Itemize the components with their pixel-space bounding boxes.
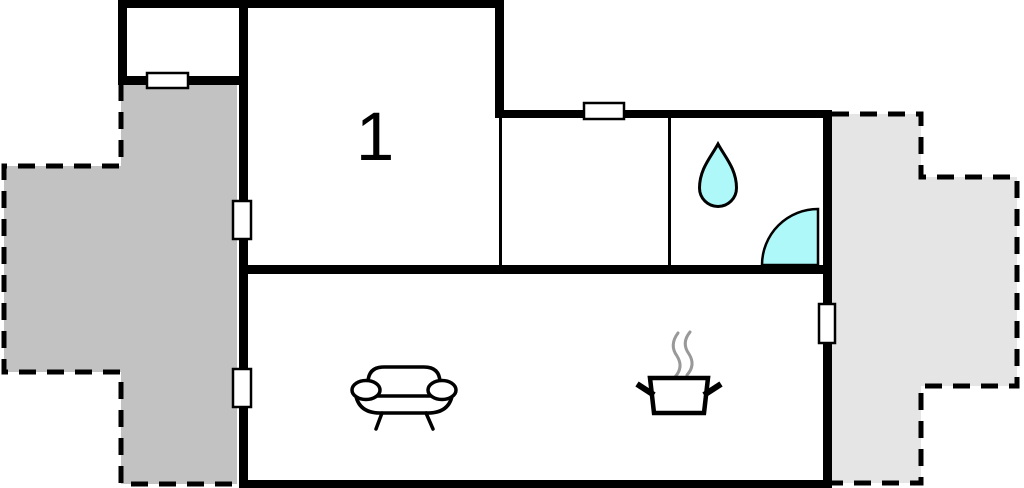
left-terrace <box>4 84 237 484</box>
right-terrace-area <box>832 114 1017 483</box>
room-1-label: 1 <box>356 98 394 175</box>
pot-body <box>650 378 708 413</box>
wall-kitchen-top <box>495 110 832 118</box>
floorplan-svg: 1 <box>0 0 1024 488</box>
partition-hall-bathroom <box>668 118 671 265</box>
window-right <box>819 304 835 343</box>
window-hall-top <box>584 103 624 119</box>
wall-right-main <box>823 110 832 488</box>
window-left-lower <box>233 369 251 407</box>
sofa-armrest-left <box>352 381 380 400</box>
wall-top <box>118 0 504 8</box>
wall-small-room-left <box>118 0 127 85</box>
window-small-room <box>147 73 188 88</box>
wall-living-top <box>239 265 832 274</box>
window-left-upper <box>233 201 251 239</box>
wall-bedroom-right <box>495 0 504 118</box>
wall-left-main <box>239 0 248 488</box>
wall-bottom <box>239 480 832 488</box>
partition-bedroom-hall <box>499 118 502 265</box>
floorplan-canvas: 1 <box>0 0 1024 488</box>
right-terrace <box>832 114 1017 483</box>
sofa-armrest-right <box>428 381 456 400</box>
